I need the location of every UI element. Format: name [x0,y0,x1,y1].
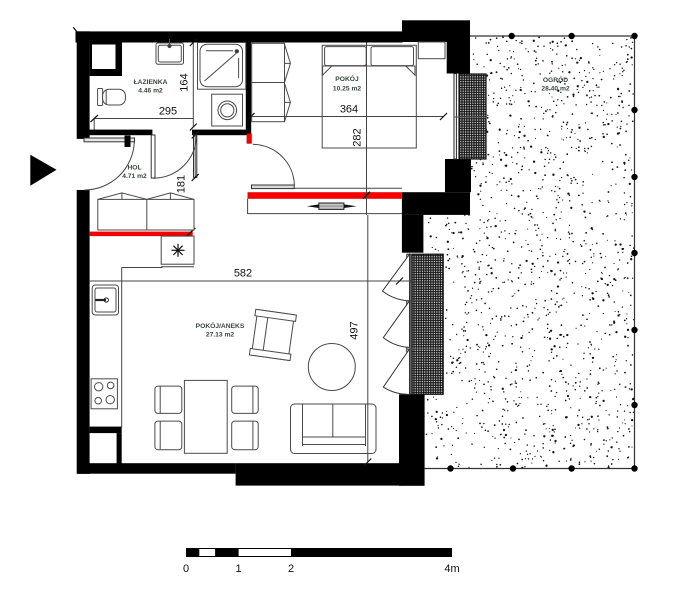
svg-text:28.40 m2: 28.40 m2 [541,86,570,93]
svg-text:POKÓJ/ANEKS: POKÓJ/ANEKS [196,321,245,330]
svg-text:164: 164 [179,73,191,91]
svg-text:OGRÓD: OGRÓD [543,75,568,84]
svg-text:10.25 m2: 10.25 m2 [333,85,362,92]
svg-text:1: 1 [236,563,242,575]
svg-text:4.46 m2: 4.46 m2 [138,88,163,95]
svg-text:ŁAZIENKA: ŁAZIENKA [134,79,168,86]
svg-text:2: 2 [288,563,294,575]
svg-text:27.13 m2: 27.13 m2 [206,332,235,339]
svg-text:497: 497 [349,321,361,339]
svg-text:4m: 4m [444,563,459,575]
svg-text:295: 295 [159,106,177,118]
svg-text:364: 364 [340,104,358,116]
svg-text:POKÓJ: POKÓJ [335,74,359,83]
svg-text:HOL: HOL [127,165,141,172]
svg-text:0: 0 [183,563,189,575]
svg-text:582: 582 [234,268,252,280]
svg-text:282: 282 [352,128,364,146]
svg-text:4.71 m2: 4.71 m2 [122,173,147,180]
svg-text:181: 181 [176,175,188,193]
